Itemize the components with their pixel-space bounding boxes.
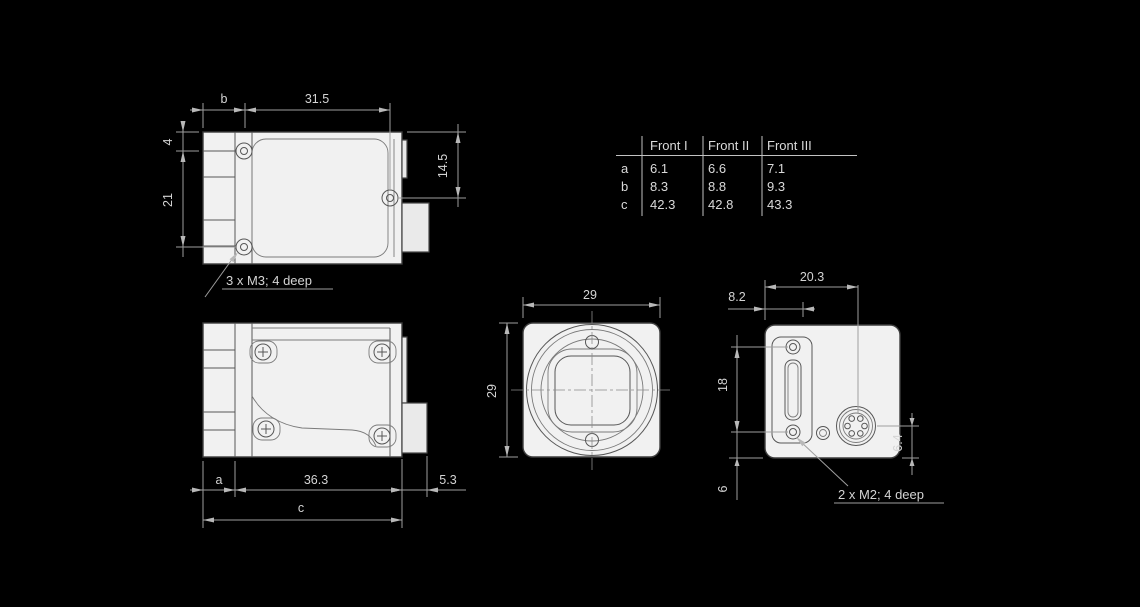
table-cell-c-2: 42.8 bbox=[708, 197, 733, 212]
table-row-label-a: a bbox=[621, 161, 629, 176]
back-view-body bbox=[765, 325, 900, 458]
table-cell-b-3: 9.3 bbox=[767, 179, 785, 194]
top-dim-21: 21 bbox=[161, 193, 175, 207]
front-view-body bbox=[511, 311, 673, 470]
side-view: a 36.3 5.3 c bbox=[190, 323, 466, 528]
side-view-dimensions: a 36.3 5.3 c bbox=[190, 456, 466, 528]
table-cell-c-1: 42.3 bbox=[650, 197, 675, 212]
back-view: 20.3 8.2 18 6 6.4 bbox=[716, 270, 944, 503]
back-view-note: 2 x M2; 4 deep bbox=[838, 487, 924, 502]
table-cell-a-3: 7.1 bbox=[767, 161, 785, 176]
drawing-canvas: b 31.5 4 21 14.5 3 x M3; 4 deep bbox=[0, 0, 1140, 607]
side-dim-5-3: 5.3 bbox=[439, 473, 456, 487]
top-view-note: 3 x M3; 4 deep bbox=[226, 273, 312, 288]
back-dim-18: 18 bbox=[716, 378, 730, 392]
top-dim-31-5: 31.5 bbox=[305, 92, 329, 106]
back-dim-6: 6 bbox=[716, 485, 730, 492]
front-variants-table: Front I Front II Front III a 6.1 6.6 7.1… bbox=[616, 136, 857, 216]
side-view-side-tab bbox=[402, 337, 407, 403]
side-view-connector bbox=[402, 403, 427, 453]
top-view-body bbox=[203, 132, 429, 264]
table-header-front-2: Front II bbox=[708, 138, 749, 153]
table-cell-a-1: 6.1 bbox=[650, 161, 668, 176]
table-row-label-c: c bbox=[621, 197, 628, 212]
side-dim-36-3: 36.3 bbox=[304, 473, 328, 487]
table-cell-c-3: 43.3 bbox=[767, 197, 792, 212]
front-dim-height: 29 bbox=[485, 384, 499, 398]
table-row-label-b: b bbox=[621, 179, 628, 194]
back-dim-20-3: 20.3 bbox=[800, 270, 824, 284]
top-dim-4: 4 bbox=[161, 138, 175, 145]
side-view-body bbox=[203, 323, 427, 457]
top-view-side-tab bbox=[402, 140, 407, 178]
back-dim-6-4: 6.4 bbox=[891, 434, 905, 451]
dimensional-drawing-svg: b 31.5 4 21 14.5 3 x M3; 4 deep bbox=[0, 0, 1140, 607]
table-cell-b-1: 8.3 bbox=[650, 179, 668, 194]
side-dim-c: c bbox=[298, 501, 304, 515]
top-view: b 31.5 4 21 14.5 3 x M3; 4 deep bbox=[161, 92, 466, 297]
table-cell-a-2: 6.6 bbox=[708, 161, 726, 176]
back-dim-8-2: 8.2 bbox=[728, 290, 745, 304]
front-dim-width: 29 bbox=[583, 288, 597, 302]
top-dim-14-5: 14.5 bbox=[436, 154, 450, 178]
side-dim-a: a bbox=[216, 473, 223, 487]
table-header-front-1: Front I bbox=[650, 138, 688, 153]
table-cell-b-2: 8.8 bbox=[708, 179, 726, 194]
table-header-front-3: Front III bbox=[767, 138, 812, 153]
top-dim-b: b bbox=[221, 92, 228, 106]
top-view-connector bbox=[402, 203, 429, 252]
front-view: 29 29 bbox=[485, 288, 673, 470]
